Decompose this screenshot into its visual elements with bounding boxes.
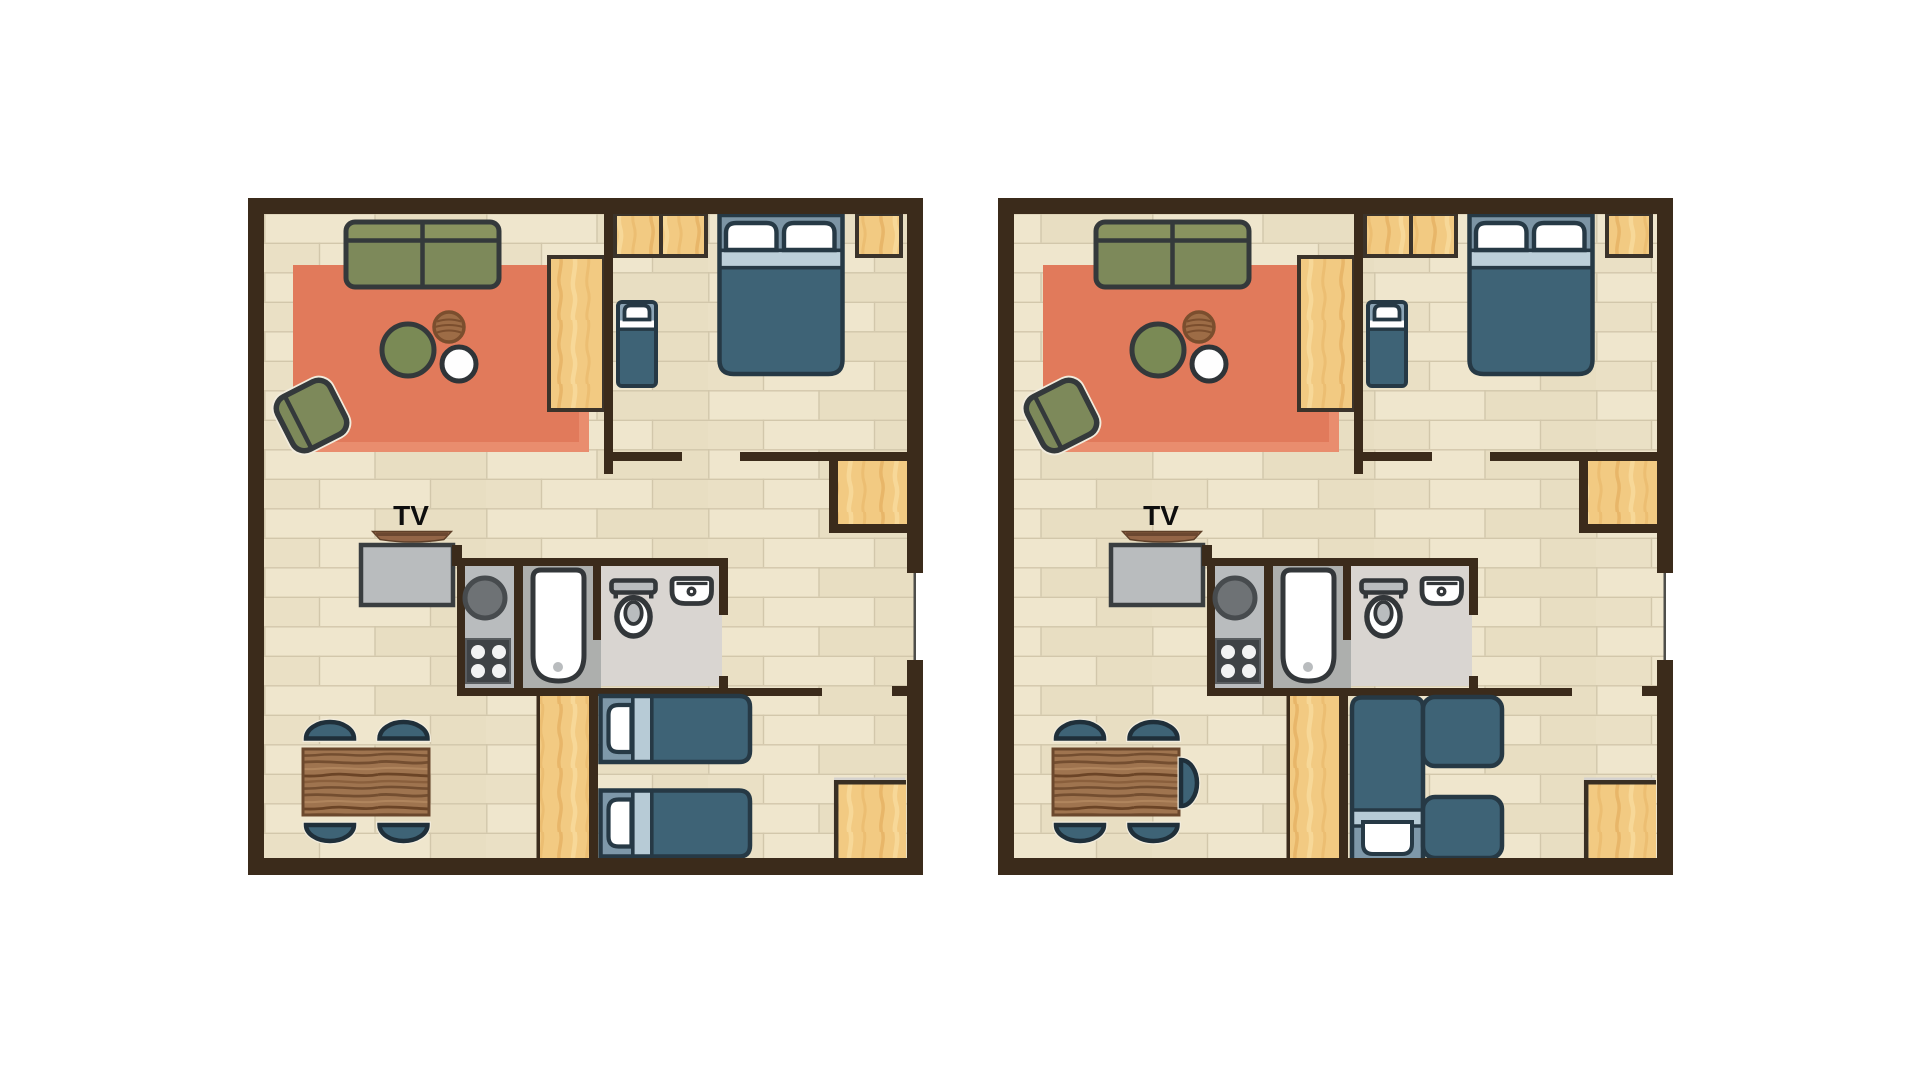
svg-text:TV: TV bbox=[393, 500, 429, 531]
svg-text:TV: TV bbox=[1143, 500, 1179, 531]
